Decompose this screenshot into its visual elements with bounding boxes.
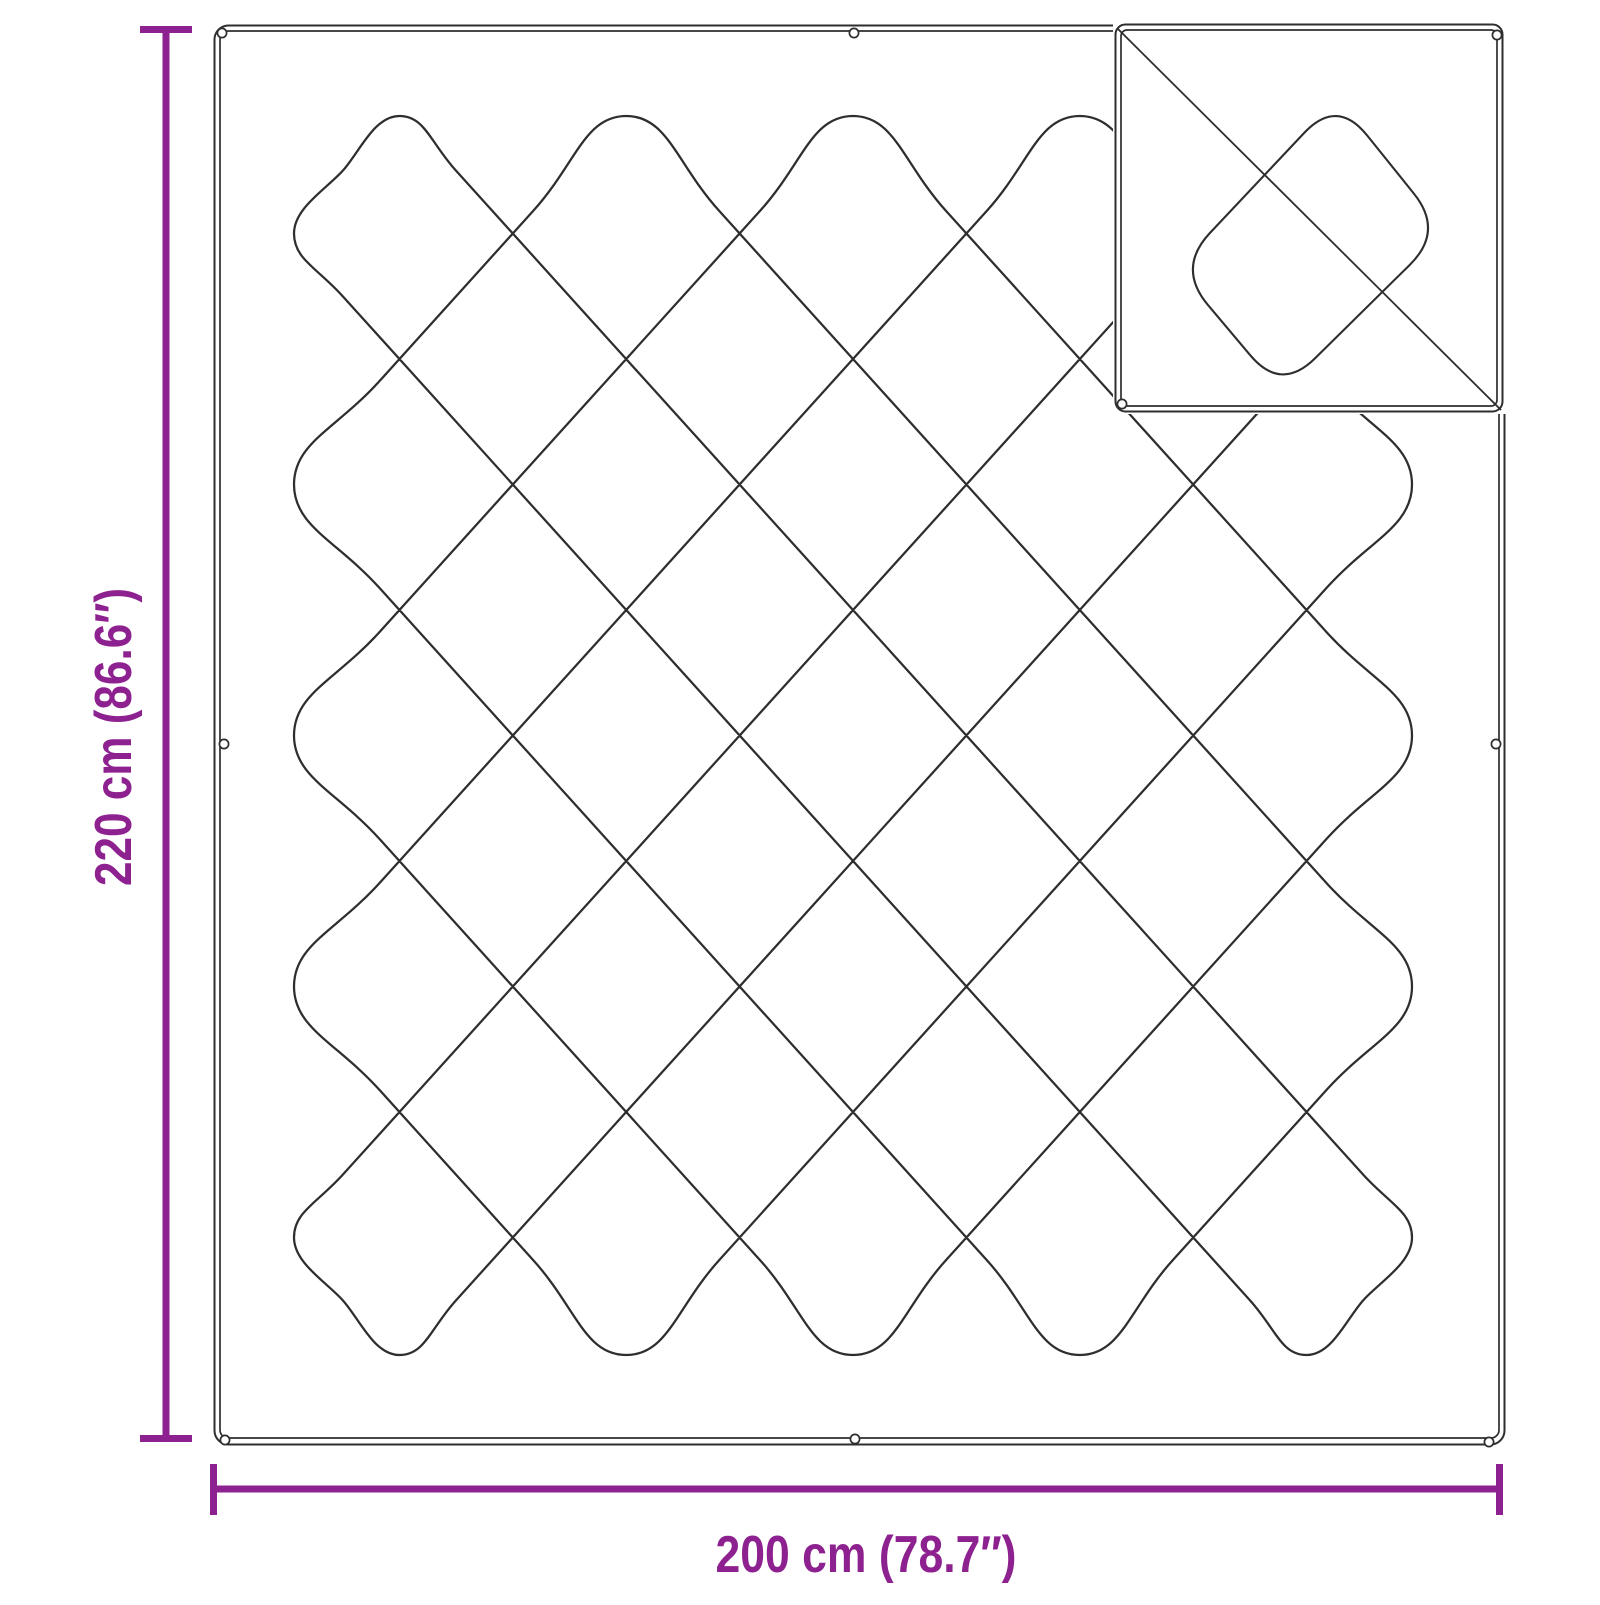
- svg-text:200 cm (78.7″): 200 cm (78.7″): [716, 1525, 1017, 1583]
- svg-text:220 cm (86.6″): 220 cm (86.6″): [84, 588, 142, 886]
